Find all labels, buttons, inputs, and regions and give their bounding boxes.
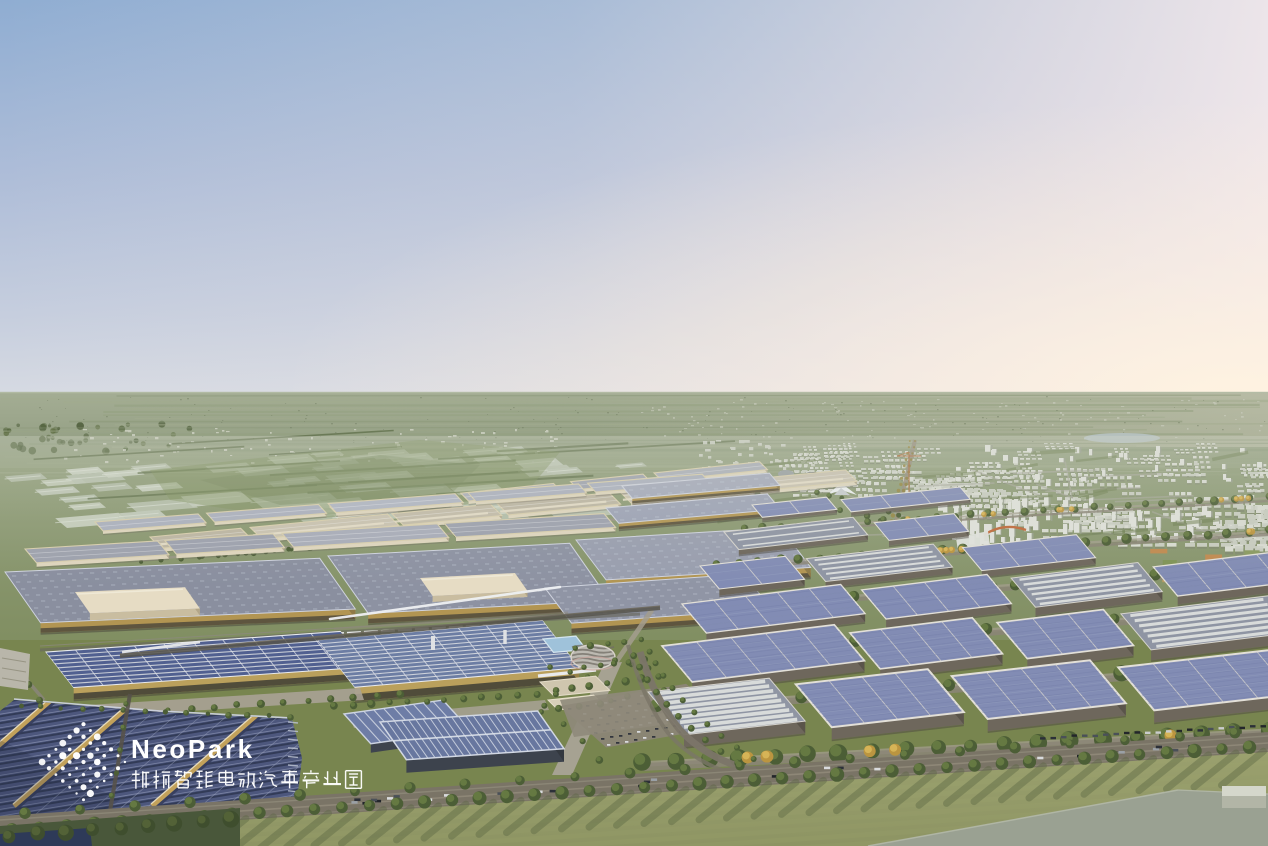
svg-text:NeoPark: NeoPark — [131, 734, 255, 764]
